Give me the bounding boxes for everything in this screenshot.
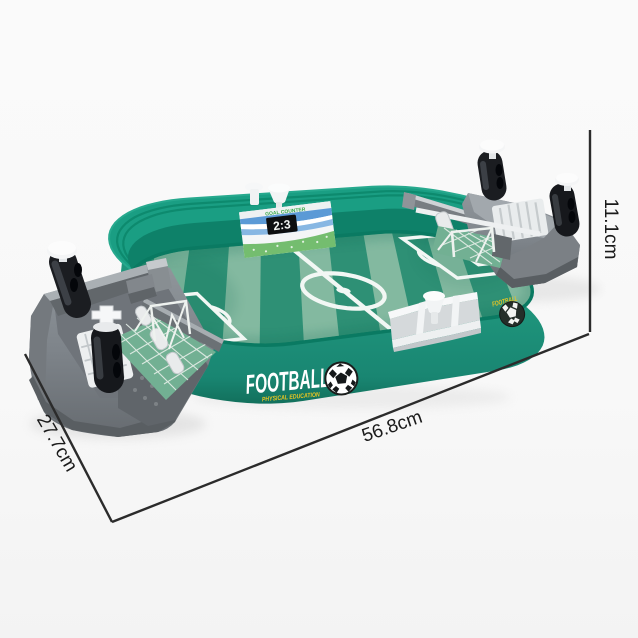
svg-text:11.1cm: 11.1cm: [600, 199, 621, 260]
svg-text:2:3: 2:3: [272, 217, 291, 233]
